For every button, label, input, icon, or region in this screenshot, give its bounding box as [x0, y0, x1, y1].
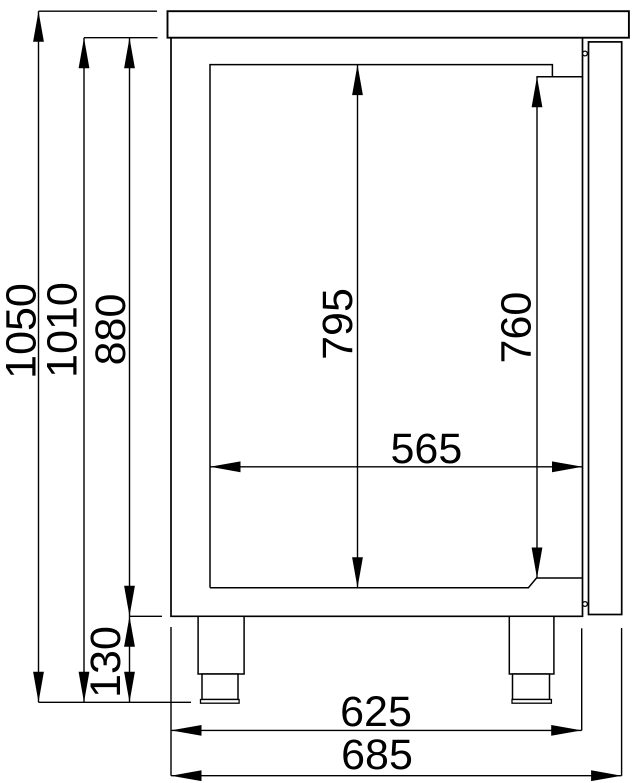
svg-text:625: 625 [340, 688, 412, 736]
svg-text:880: 880 [87, 294, 135, 366]
svg-text:760: 760 [492, 292, 540, 364]
svg-text:795: 795 [314, 288, 362, 360]
svg-text:1010: 1010 [38, 282, 86, 378]
svg-text:685: 685 [341, 731, 413, 779]
svg-text:130: 130 [82, 626, 130, 698]
svg-text:565: 565 [391, 425, 463, 473]
